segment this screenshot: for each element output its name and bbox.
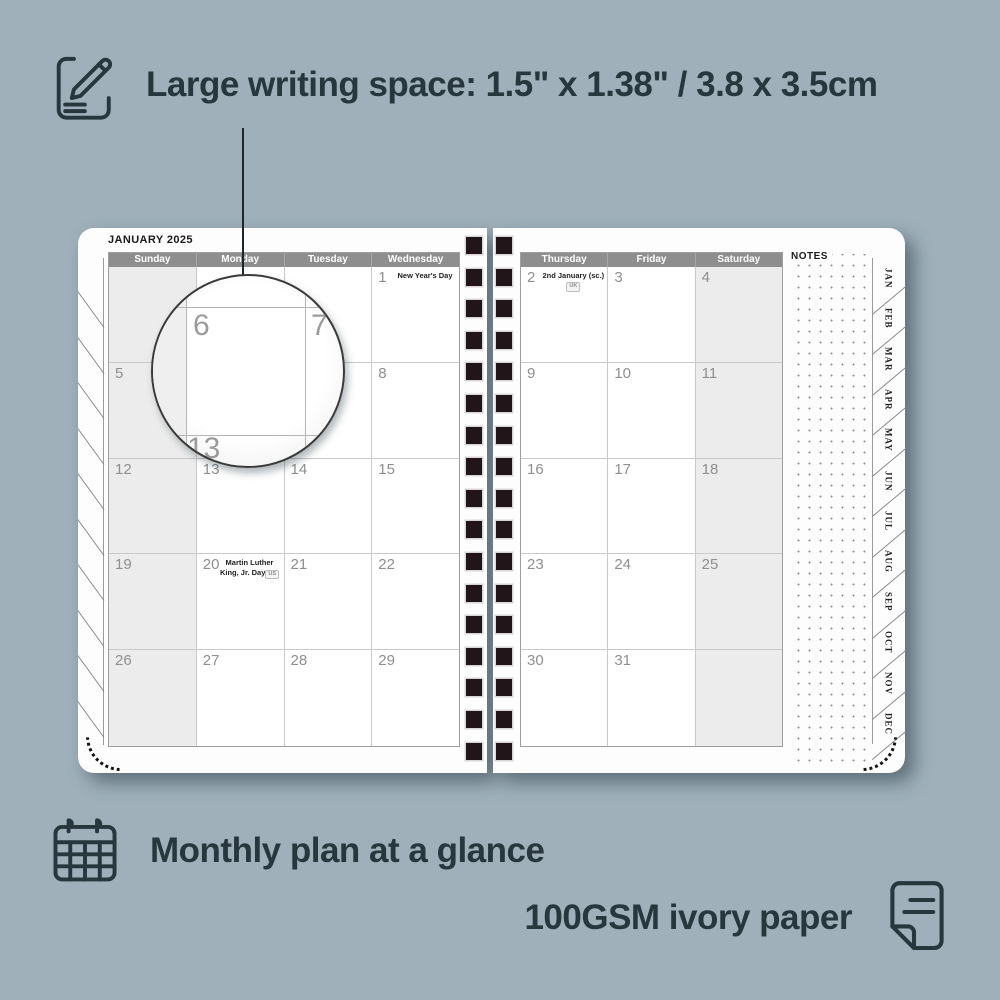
note-pencil-icon <box>52 48 122 122</box>
magnified-grid-line <box>153 307 345 308</box>
page-edge-line <box>78 609 104 647</box>
day-number: 10 <box>614 365 631 382</box>
day-header-cell: Saturday <box>696 253 782 267</box>
binding-hole <box>496 300 512 317</box>
page-edge-line <box>78 654 104 692</box>
week-row: 22nd January (sc.)UK34 <box>521 267 782 363</box>
month-tab-label: OCT <box>884 631 894 654</box>
binding-hole <box>496 521 512 538</box>
binding-hole <box>496 585 512 602</box>
planner-product-image: Large writing space: 1.5" x 1.38" / 3.8 … <box>0 0 1000 1000</box>
day-number: 23 <box>527 556 544 573</box>
notes-label: NOTES <box>791 251 832 262</box>
binding-hole <box>496 648 512 665</box>
feature-paper-label: 100GSM ivory paper <box>524 898 852 938</box>
page-edge-hatch <box>78 228 108 773</box>
binding-hole <box>496 458 512 475</box>
binding-hole <box>466 648 482 665</box>
day-header-cell: Monday <box>197 253 285 267</box>
week-row: 12131415 <box>109 459 459 555</box>
month-tab-label: APR <box>884 389 894 411</box>
binding-hole <box>496 237 512 254</box>
day-number: 19 <box>115 556 132 573</box>
day-cell: 4 <box>696 267 782 363</box>
day-cell: 28 <box>285 650 373 746</box>
feature-monthly-plan: Monthly plan at a glance <box>50 816 544 886</box>
binding-hole <box>496 490 512 507</box>
month-tab-mar: MAR <box>873 339 904 380</box>
month-tab-oct: OCT <box>873 623 904 664</box>
day-cell: 9 <box>521 363 608 459</box>
day-cell: 17 <box>608 459 695 555</box>
page-edge-line <box>78 336 104 374</box>
day-cell: 19 <box>109 554 197 650</box>
month-title: JANUARY 2025 <box>108 234 193 246</box>
magnified-grid-line <box>305 276 306 468</box>
holiday-note: 2nd January (sc.)UK <box>542 271 604 292</box>
binding-hole <box>466 679 482 696</box>
month-tab-label: JUN <box>884 471 894 492</box>
day-cell: 22 <box>372 554 459 650</box>
binding-hole <box>496 743 512 760</box>
binding-hole <box>466 458 482 475</box>
month-tab-label: SEP <box>884 592 894 612</box>
page-edge-line <box>78 472 104 510</box>
day-cell: 13 <box>197 459 285 555</box>
week-row: 91011 <box>521 363 782 459</box>
day-cell: 30 <box>521 650 608 746</box>
page-edge-line <box>78 518 104 556</box>
day-header-cell: Wednesday <box>372 253 459 267</box>
holiday-note: New Year's Day <box>394 271 456 280</box>
day-number: 29 <box>378 652 395 669</box>
binding-hole <box>466 332 482 349</box>
corner-stitch-arc-left <box>86 701 156 771</box>
feature-writing-space: Large writing space: 1.5" x 1.38" / 3.8 … <box>52 48 877 122</box>
magnifier-pointer-line <box>242 128 244 278</box>
magnifier-circle: 6 7 13 <box>151 274 345 468</box>
day-number: 25 <box>702 556 719 573</box>
day-cell: 1New Year's Day <box>372 267 459 363</box>
day-number: 31 <box>614 652 631 669</box>
day-number: 17 <box>614 461 631 478</box>
binding-hole <box>496 679 512 696</box>
paper-sheet-icon <box>878 876 950 960</box>
page-edge-line <box>78 563 104 601</box>
day-cell: 23 <box>521 554 608 650</box>
day-cell: 3 <box>608 267 695 363</box>
binding-hole <box>496 711 512 728</box>
month-tab-may: MAY <box>873 420 904 461</box>
day-cell: 14 <box>285 459 373 555</box>
day-number: 12 <box>115 461 132 478</box>
month-tab-label: NOV <box>884 672 894 695</box>
month-tab-label: MAY <box>884 428 894 452</box>
day-cell: 11 <box>696 363 782 459</box>
day-cell: 15 <box>372 459 459 555</box>
page-edge-line <box>78 290 104 328</box>
calendar-grid-right: ThursdayFridaySaturday 22nd January (sc.… <box>520 252 783 747</box>
calendar-icon <box>50 816 120 886</box>
binding-hole <box>496 553 512 570</box>
holiday-note: Martin Luther King, Jr. DayUS <box>219 558 281 579</box>
page-edge-line <box>78 381 104 419</box>
day-number: 28 <box>291 652 308 669</box>
magnified-day-number: 7 <box>311 309 328 343</box>
binding-hole <box>496 269 512 286</box>
day-cell: 18 <box>696 459 782 555</box>
binding-hole <box>466 395 482 412</box>
binding-hole <box>466 585 482 602</box>
day-number: 2 <box>527 269 535 286</box>
page-edge-line <box>103 258 104 745</box>
month-tab-sep: SEP <box>873 582 904 623</box>
binding-hole <box>496 427 512 444</box>
binding-hole <box>466 711 482 728</box>
magnified-day-number: 6 <box>193 309 210 343</box>
holiday-region-badge: UK <box>566 282 580 291</box>
day-cell: 8 <box>372 363 459 459</box>
day-number: 21 <box>291 556 308 573</box>
day-number: 26 <box>115 652 132 669</box>
magnified-sunday-shading <box>153 276 186 468</box>
day-number: 1 <box>378 269 386 286</box>
binding-hole <box>496 363 512 380</box>
month-tab-label: JUL <box>884 511 894 531</box>
month-tab-nov: NOV <box>873 663 904 704</box>
binding-hole <box>466 553 482 570</box>
day-number: 16 <box>527 461 544 478</box>
day-number: 4 <box>702 269 710 286</box>
page-edge-line <box>78 427 104 465</box>
binding-hole <box>466 490 482 507</box>
binding-hole <box>496 332 512 349</box>
binding-holes-right <box>496 228 512 773</box>
day-header-cell: Friday <box>608 253 695 267</box>
day-cell: 27 <box>197 650 285 746</box>
month-tab-jul: JUL <box>873 501 904 542</box>
day-number: 15 <box>378 461 395 478</box>
corner-stitch-arc-right <box>827 701 897 771</box>
day-cell: 21 <box>285 554 373 650</box>
month-tab-label: JAN <box>884 268 894 289</box>
binding-hole <box>466 427 482 444</box>
binding-hole <box>466 237 482 254</box>
holiday-region-badge: US <box>265 570 279 579</box>
magnified-day-number: 13 <box>187 432 220 466</box>
day-cell: 10 <box>608 363 695 459</box>
day-number: 20 <box>203 556 220 573</box>
day-cell: 22nd January (sc.)UK <box>521 267 608 363</box>
month-tab-label: AUG <box>884 550 894 573</box>
day-number: 27 <box>203 652 220 669</box>
day-cell: 20Martin Luther King, Jr. DayUS <box>197 554 285 650</box>
week-row: 1920Martin Luther King, Jr. DayUS2122 <box>109 554 459 650</box>
feature-writing-space-label: Large writing space: 1.5" x 1.38" / 3.8 … <box>146 65 877 105</box>
day-cell: 24 <box>608 554 695 650</box>
binding-hole <box>466 300 482 317</box>
day-number: 24 <box>614 556 631 573</box>
day-number: 11 <box>702 365 718 382</box>
week-row: 26272829 <box>109 650 459 746</box>
notes-dot-grid <box>789 254 873 764</box>
month-tab-label: FEB <box>884 308 894 329</box>
binding-hole <box>466 269 482 286</box>
binding-hole <box>496 616 512 633</box>
month-tabs: JANFEBMARAPRMAYJUNJULAUGSEPOCTNOVDEC <box>872 258 904 744</box>
feature-paper: 100GSM ivory paper <box>524 876 950 960</box>
day-header-cell: Sunday <box>109 253 197 267</box>
day-number: 30 <box>527 652 544 669</box>
day-number: 5 <box>115 365 123 382</box>
day-number: 9 <box>527 365 535 382</box>
day-cell: 12 <box>109 459 197 555</box>
month-tab-jun: JUN <box>873 461 904 502</box>
binding-hole <box>496 395 512 412</box>
binding-hole <box>466 521 482 538</box>
day-number: 3 <box>614 269 622 286</box>
binding-holes-left <box>466 228 482 773</box>
day-cell <box>696 650 782 746</box>
feature-monthly-plan-label: Monthly plan at a glance <box>150 831 544 871</box>
day-number: 22 <box>378 556 395 573</box>
week-row: 232425 <box>521 554 782 650</box>
month-tab-aug: AUG <box>873 542 904 583</box>
binding-hole <box>466 616 482 633</box>
day-header-cell: Tuesday <box>285 253 373 267</box>
day-header-cell: Thursday <box>521 253 608 267</box>
week-row: 161718 <box>521 459 782 555</box>
day-cell: 16 <box>521 459 608 555</box>
planner-right-page: ThursdayFridaySaturday 22nd January (sc.… <box>493 228 905 773</box>
magnified-grid-line <box>153 435 345 436</box>
month-tab-label: MAR <box>884 347 894 372</box>
day-number: 18 <box>702 461 719 478</box>
month-tab-jan: JAN <box>873 258 904 299</box>
week-row: 3031 <box>521 650 782 746</box>
day-cell: 29 <box>372 650 459 746</box>
day-number: 8 <box>378 365 386 382</box>
binding-hole <box>466 743 482 760</box>
month-tab-apr: APR <box>873 380 904 421</box>
binding-hole <box>466 363 482 380</box>
month-tab-feb: FEB <box>873 299 904 340</box>
day-cell: 25 <box>696 554 782 650</box>
day-cell: 31 <box>608 650 695 746</box>
